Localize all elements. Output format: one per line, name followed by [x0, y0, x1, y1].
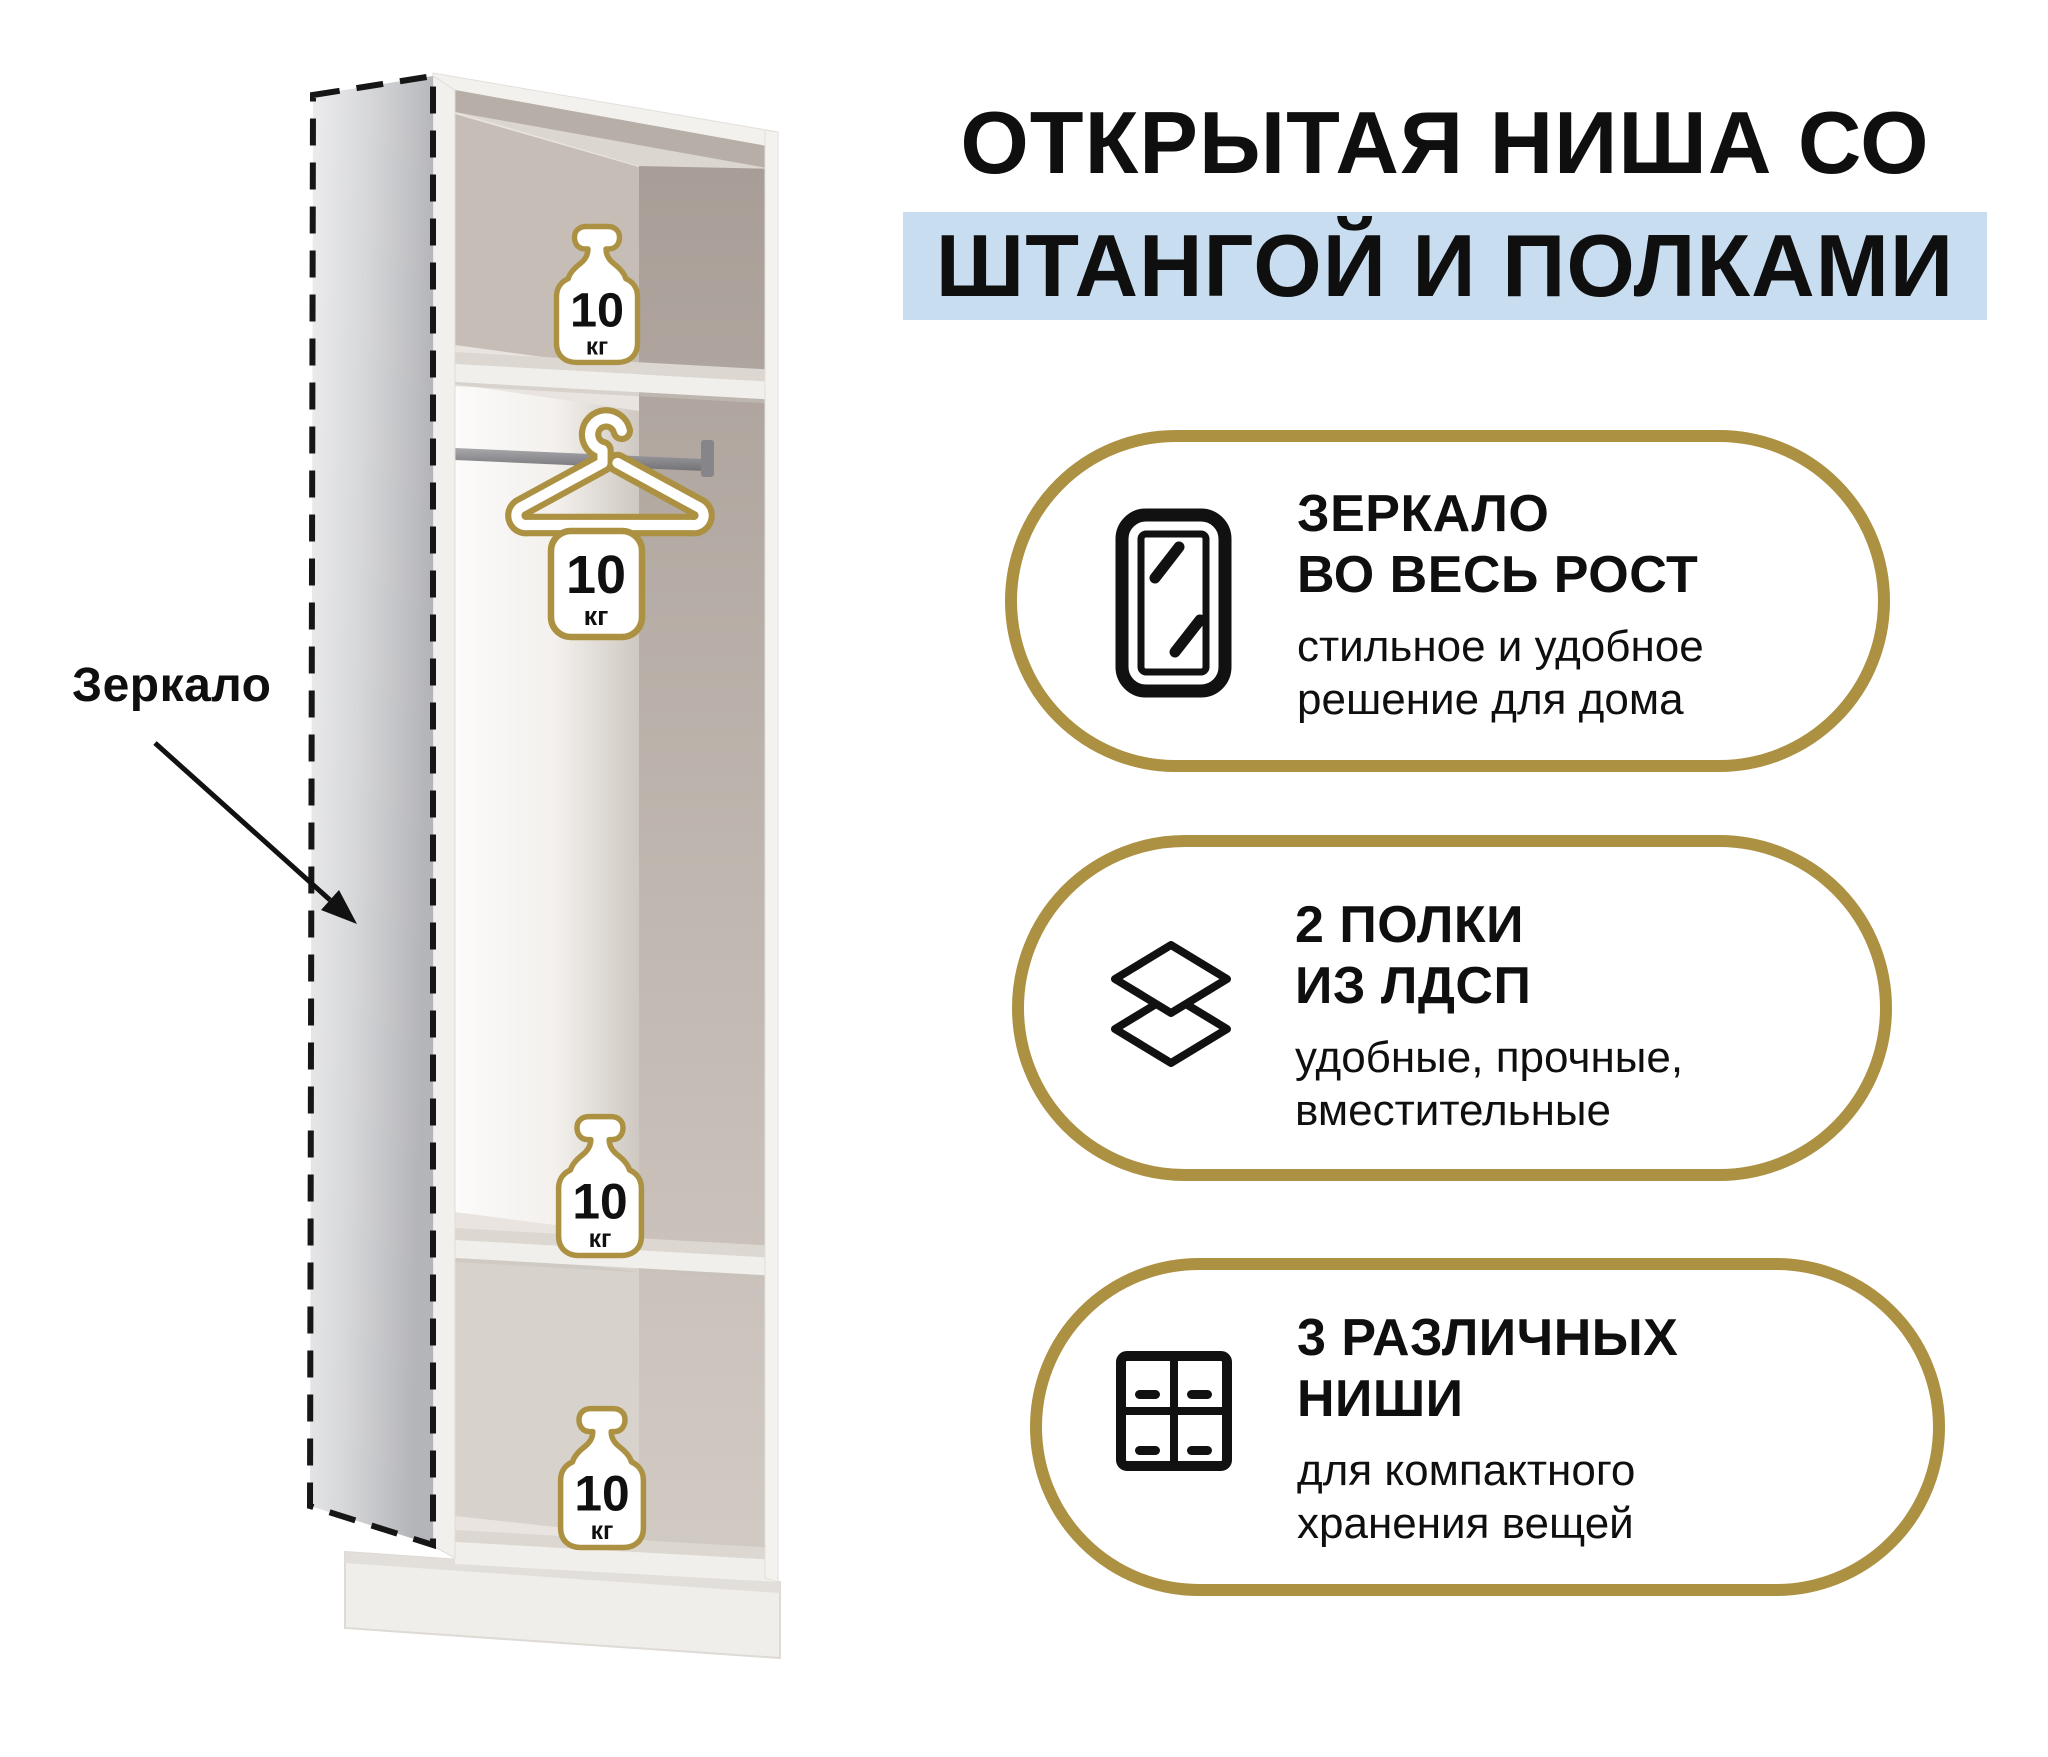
svg-text:кг: кг	[584, 601, 609, 631]
feature-card-mirror: ЗЕРКАЛО ВО ВЕСЬ РОСТ стильное и удобное …	[1005, 430, 1890, 772]
feature-card-niches: 3 РАЗЛИЧНЫХ НИШИ для компактного хранени…	[1030, 1258, 1945, 1596]
title-line-1: ОТКРЫТАЯ НИША СО	[880, 88, 2010, 198]
right-front-edge	[765, 130, 778, 1582]
feature-heading-line: ЗЕРКАЛО	[1297, 484, 1704, 545]
feature-desc-line: решение для дома	[1297, 673, 1704, 726]
feature-heading-line: НИШИ	[1297, 1369, 1678, 1430]
mirror-callout-arrow	[95, 715, 395, 955]
feature-desc-line: стильное и удобное	[1297, 620, 1704, 673]
feature-desc-line: удобные, прочные,	[1295, 1031, 1683, 1084]
feature-heading-line: ИЗ ЛДСП	[1295, 956, 1683, 1017]
niches-icon	[1115, 1350, 1233, 1472]
feature-card-shelves: 2 ПОЛКИ ИЗ ЛДСП удобные, прочные, вмести…	[1012, 835, 1892, 1181]
mirror-icon	[1115, 508, 1232, 698]
feature-heading-line: ВО ВЕСЬ РОСТ	[1297, 545, 1704, 606]
shelves-icon	[1107, 939, 1235, 1069]
feature-desc-line: для компактного	[1297, 1444, 1678, 1497]
svg-text:10: 10	[566, 545, 626, 605]
title-line-2-highlight: ШТАНГОЙ И ПОЛКАМИ	[903, 212, 1987, 320]
product-infographic: 10 кг	[0, 0, 2048, 1757]
feature-desc-line: хранения вещей	[1297, 1497, 1678, 1550]
weight-10kg-tag: 10 кг	[551, 531, 642, 637]
feature-heading-line: 3 РАЗЛИЧНЫХ	[1297, 1308, 1678, 1369]
feature-heading-line: 2 ПОЛКИ	[1295, 895, 1683, 956]
mirror-callout-label: Зеркало	[72, 658, 271, 713]
title-line-2-text: ШТАНГОЙ И ПОЛКАМИ	[936, 215, 1954, 317]
left-front-edge	[433, 76, 455, 1558]
feature-desc-line: вместительные	[1295, 1084, 1683, 1137]
